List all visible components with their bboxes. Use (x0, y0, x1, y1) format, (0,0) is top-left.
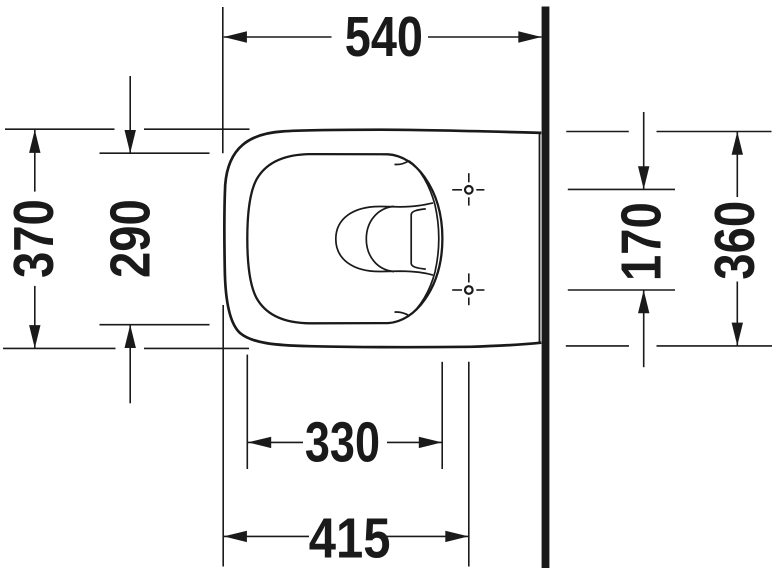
svg-text:370: 370 (3, 199, 66, 278)
svg-text:415: 415 (309, 507, 391, 570)
svg-text:330: 330 (305, 410, 380, 473)
svg-text:290: 290 (99, 199, 162, 278)
svg-text:360: 360 (704, 201, 767, 280)
svg-text:540: 540 (345, 6, 423, 69)
svg-text:170: 170 (611, 202, 674, 281)
